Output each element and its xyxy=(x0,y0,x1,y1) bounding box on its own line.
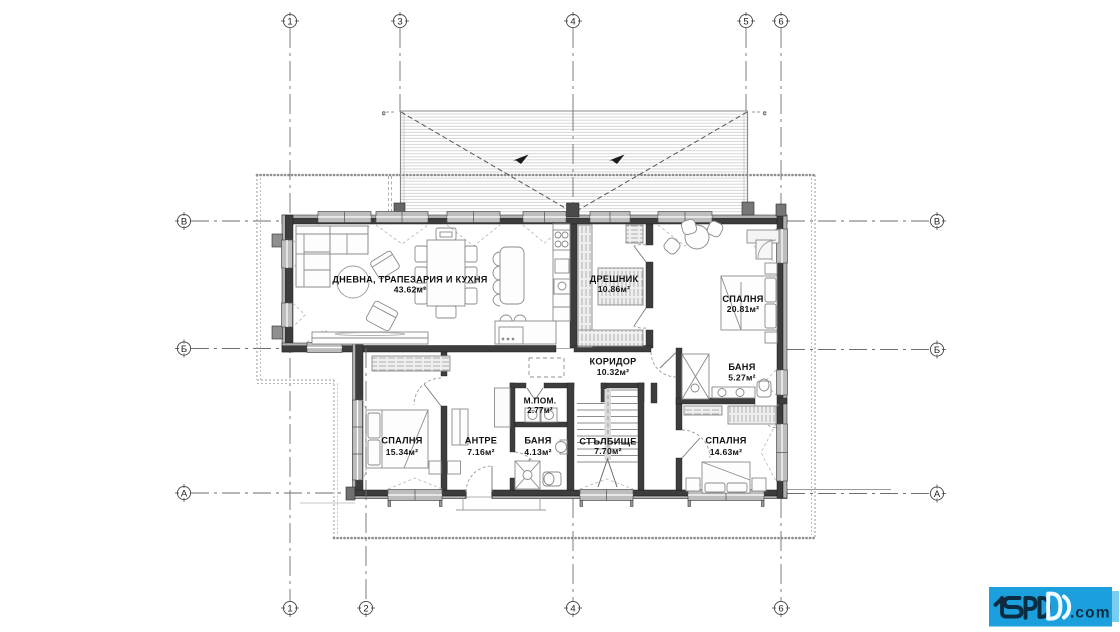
svg-text:2: 2 xyxy=(363,603,368,614)
svg-text:ДРЕШНИК: ДРЕШНИК xyxy=(590,274,639,284)
svg-text:БАНЯ: БАНЯ xyxy=(524,436,551,446)
svg-text:6: 6 xyxy=(778,603,783,614)
svg-text:5: 5 xyxy=(743,16,748,27)
svg-text:15.34м²: 15.34м² xyxy=(386,447,418,457)
svg-text:М.ПОМ.: М.ПОМ. xyxy=(524,396,557,406)
svg-text:СПАЛНЯ: СПАЛНЯ xyxy=(722,294,763,304)
svg-text:А: А xyxy=(181,488,188,499)
svg-text:1: 1 xyxy=(287,16,292,27)
svg-text:4: 4 xyxy=(570,16,575,27)
svg-text:СПАЛНЯ: СПАЛНЯ xyxy=(705,436,746,446)
svg-text:6: 6 xyxy=(778,16,783,27)
svg-text:20.81м²: 20.81м² xyxy=(727,304,759,314)
svg-text:СТЪЛБИЩЕ: СТЪЛБИЩЕ xyxy=(579,437,636,447)
svg-text:ДНЕВНА, ТРАПЕЗАРИЯ И КУХНЯ: ДНЕВНА, ТРАПЕЗАРИЯ И КУХНЯ xyxy=(332,275,487,285)
svg-text:4: 4 xyxy=(570,603,575,614)
svg-text:10.86м²: 10.86м² xyxy=(598,284,630,294)
svg-text:14.63м²: 14.63м² xyxy=(710,447,742,457)
svg-text:Б: Б xyxy=(934,345,940,356)
svg-text:Б: Б xyxy=(181,344,187,355)
svg-text:А: А xyxy=(934,489,941,500)
svg-text:СПАЛНЯ: СПАЛНЯ xyxy=(381,436,422,446)
svg-text:10.32м²: 10.32м² xyxy=(597,367,629,377)
svg-text:АНТРЕ: АНТРЕ xyxy=(465,436,497,446)
svg-text:КОРИДОР: КОРИДОР xyxy=(589,357,636,367)
svg-text:7.70м²: 7.70м² xyxy=(594,446,621,456)
svg-text:В: В xyxy=(934,216,940,227)
svg-text:5.27м²: 5.27м² xyxy=(728,373,755,383)
svg-text:1: 1 xyxy=(287,603,292,614)
svg-text:.com: .com xyxy=(1070,605,1111,622)
svg-text:4.13м²: 4.13м² xyxy=(524,447,551,457)
svg-text:7.16м²: 7.16м² xyxy=(467,447,494,457)
svg-text:2.77м²: 2.77м² xyxy=(527,406,553,415)
svg-text:3: 3 xyxy=(397,16,402,27)
svg-text:БАНЯ: БАНЯ xyxy=(728,362,755,372)
svg-text:В: В xyxy=(181,216,187,227)
svg-text:43.62м²: 43.62м² xyxy=(394,285,426,295)
